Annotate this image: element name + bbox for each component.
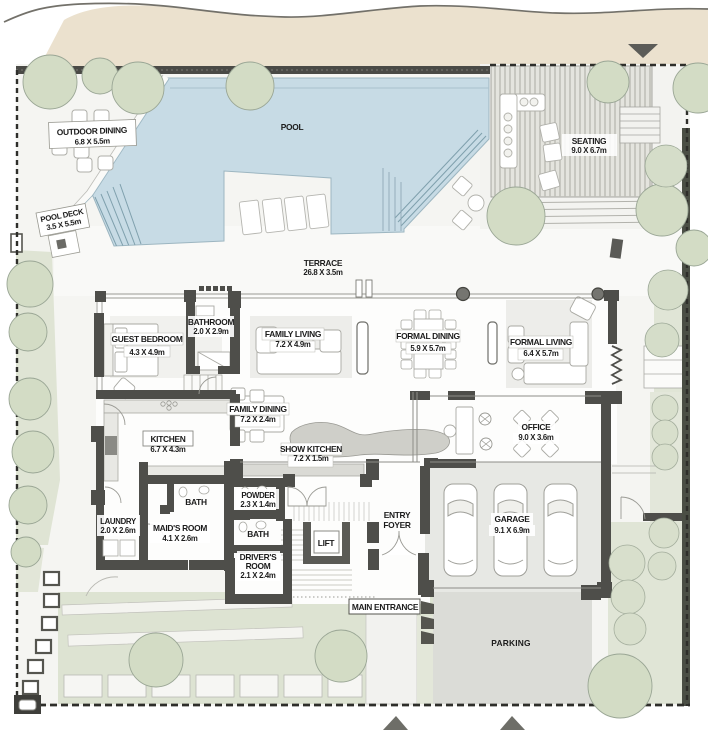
svg-text:FAMILY DINING: FAMILY DINING [229,404,287,414]
svg-text:GUEST BEDROOM: GUEST BEDROOM [111,334,182,344]
svg-text:ROOM: ROOM [246,561,271,571]
svg-text:2.0 X 2.9m: 2.0 X 2.9m [193,327,229,336]
svg-text:FAMILY LIVING: FAMILY LIVING [265,329,321,339]
svg-text:FORMAL LIVING: FORMAL LIVING [510,337,572,347]
svg-text:POWDER: POWDER [241,491,275,500]
svg-text:POOL: POOL [281,122,304,132]
svg-text:9.0 X 6.7m: 9.0 X 6.7m [571,146,607,155]
svg-text:BATH: BATH [247,529,269,539]
svg-text:MAID'S ROOM: MAID'S ROOM [153,523,207,533]
svg-text:GARAGE: GARAGE [495,514,531,524]
svg-text:SEATING: SEATING [572,136,607,146]
svg-text:9.1 X 6.9m: 9.1 X 6.9m [494,526,530,535]
svg-text:LIFT: LIFT [318,538,336,548]
svg-text:MAIN ENTRANCE: MAIN ENTRANCE [352,602,419,612]
svg-text:6.8 X 5.5m: 6.8 X 5.5m [75,136,111,146]
svg-text:KITCHEN: KITCHEN [150,434,185,444]
svg-text:6.4 X 5.7m: 6.4 X 5.7m [523,349,559,358]
svg-text:TERRACE: TERRACE [304,258,343,268]
svg-text:SHOW KITCHEN: SHOW KITCHEN [280,444,342,454]
svg-text:LAUNDRY: LAUNDRY [100,517,137,526]
svg-text:9.0 X 3.6m: 9.0 X 3.6m [518,433,554,442]
svg-text:BATHROOM: BATHROOM [188,317,235,327]
svg-text:FOYER: FOYER [383,520,411,530]
svg-text:4.3 X 4.9m: 4.3 X 4.9m [129,348,165,357]
svg-text:ENTRY: ENTRY [384,510,411,520]
svg-text:6.7 X 4.3m: 6.7 X 4.3m [150,445,186,454]
svg-text:4.1 X 2.6m: 4.1 X 2.6m [162,534,198,543]
svg-text:OFFICE: OFFICE [522,422,552,432]
svg-text:BATH: BATH [185,497,207,507]
svg-text:FORMAL DINING: FORMAL DINING [396,331,459,341]
svg-text:7.2 X 4.9m: 7.2 X 4.9m [275,340,311,349]
svg-text:7.2 X 1.5m: 7.2 X 1.5m [293,454,329,463]
svg-text:26.8 X 3.5m: 26.8 X 3.5m [303,268,343,277]
svg-text:PARKING: PARKING [491,638,530,648]
svg-text:7.2 X 2.4m: 7.2 X 2.4m [240,415,276,424]
svg-text:2.1 X 2.4m: 2.1 X 2.4m [240,571,276,580]
svg-text:5.9 X 5.7m: 5.9 X 5.7m [410,344,446,353]
svg-text:2.0 X 2.6m: 2.0 X 2.6m [100,526,136,535]
svg-text:2.3 X 1.4m: 2.3 X 1.4m [240,500,276,509]
